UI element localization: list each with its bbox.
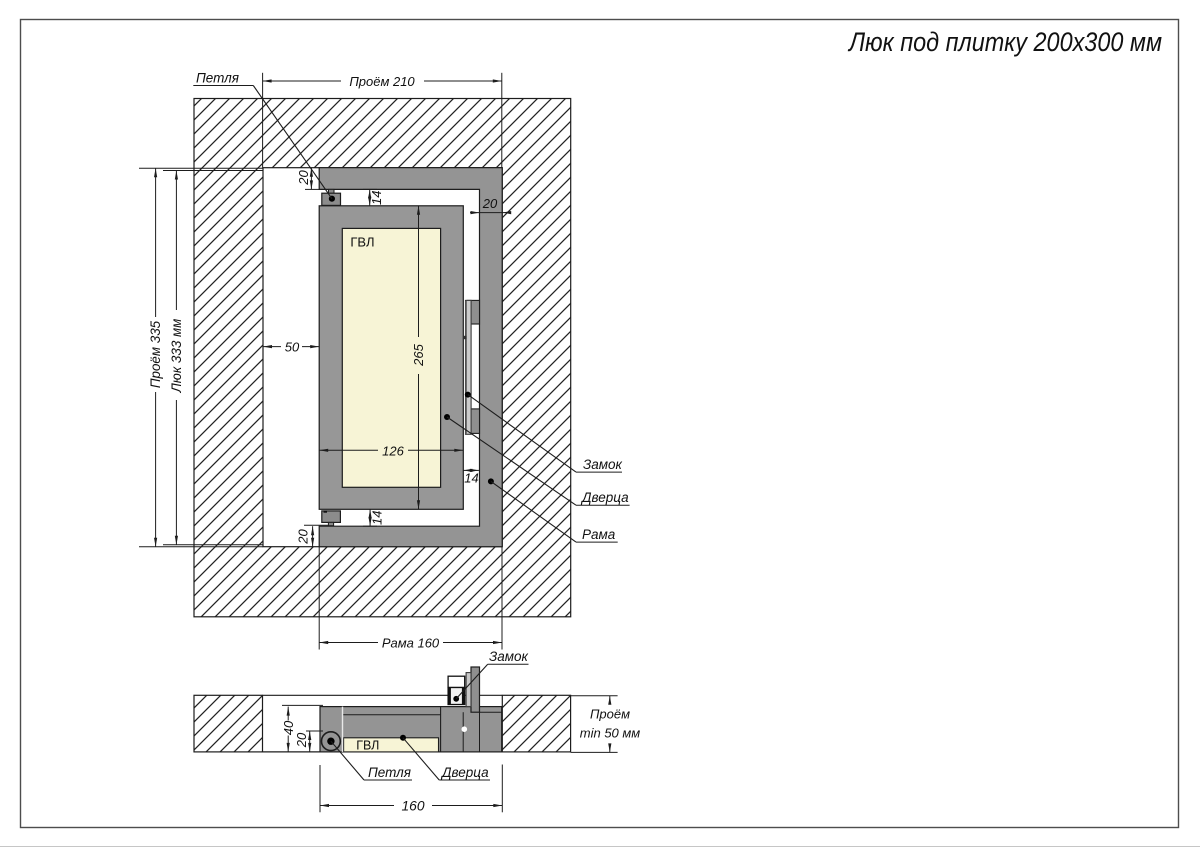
svg-text:ГВЛ: ГВЛ bbox=[356, 739, 379, 753]
svg-text:160: 160 bbox=[401, 799, 424, 814]
svg-text:Петля: Петля bbox=[196, 71, 239, 86]
svg-text:Люк 333 мм: Люк 333 мм bbox=[169, 319, 184, 394]
svg-text:20: 20 bbox=[296, 529, 311, 545]
svg-text:50: 50 bbox=[285, 340, 300, 355]
svg-text:20: 20 bbox=[482, 196, 498, 211]
svg-text:20: 20 bbox=[294, 732, 309, 748]
svg-text:Проём 210: Проём 210 bbox=[349, 74, 415, 89]
svg-text:126: 126 bbox=[382, 443, 404, 458]
svg-text:Замок: Замок bbox=[583, 457, 623, 472]
svg-text:Проём 335: Проём 335 bbox=[148, 320, 163, 388]
svg-text:Дверца: Дверца bbox=[580, 490, 629, 505]
svg-text:min 50 мм: min 50 мм bbox=[580, 726, 641, 741]
svg-text:14: 14 bbox=[369, 191, 384, 205]
svg-text:14: 14 bbox=[369, 511, 384, 525]
svg-text:Петля: Петля bbox=[368, 765, 411, 780]
svg-text:Рама: Рама bbox=[582, 527, 616, 542]
svg-text:ГВЛ: ГВЛ bbox=[350, 234, 374, 249]
svg-text:Дверца: Дверца bbox=[440, 765, 489, 780]
svg-text:20: 20 bbox=[296, 170, 311, 186]
svg-text:Проём: Проём bbox=[590, 707, 630, 722]
svg-text:14: 14 bbox=[464, 471, 478, 486]
svg-text:265: 265 bbox=[411, 343, 426, 366]
svg-text:Люк под плитку 200х300 мм: Люк под плитку 200х300 мм bbox=[847, 27, 1162, 57]
svg-text:Рама 160: Рама 160 bbox=[382, 636, 440, 651]
svg-text:Замок: Замок bbox=[489, 649, 529, 664]
